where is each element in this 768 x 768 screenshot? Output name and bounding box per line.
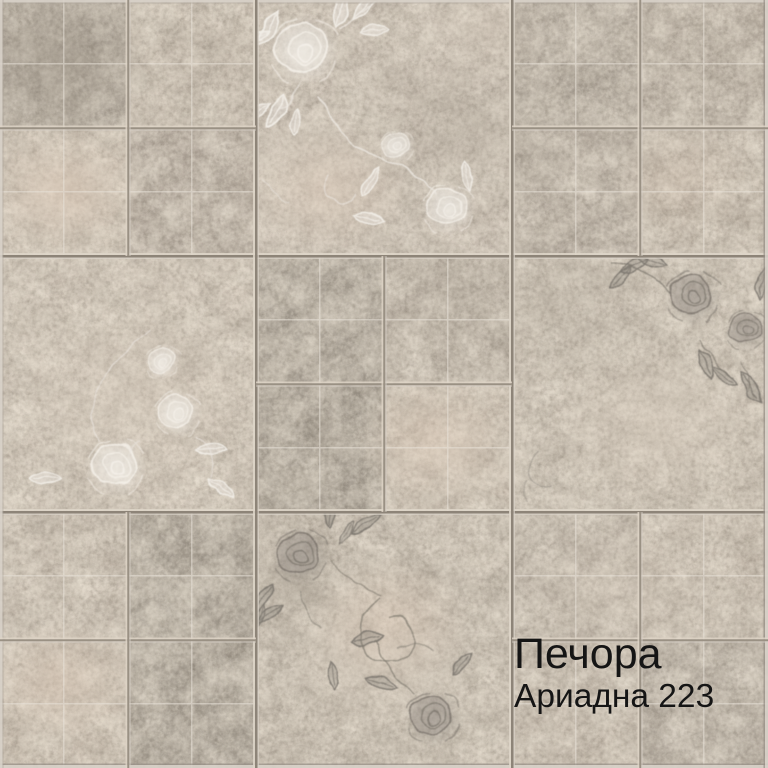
svg-text:Ариадна 223: Ариадна 223 <box>514 678 714 715</box>
svg-text:Печора: Печора <box>514 630 662 678</box>
